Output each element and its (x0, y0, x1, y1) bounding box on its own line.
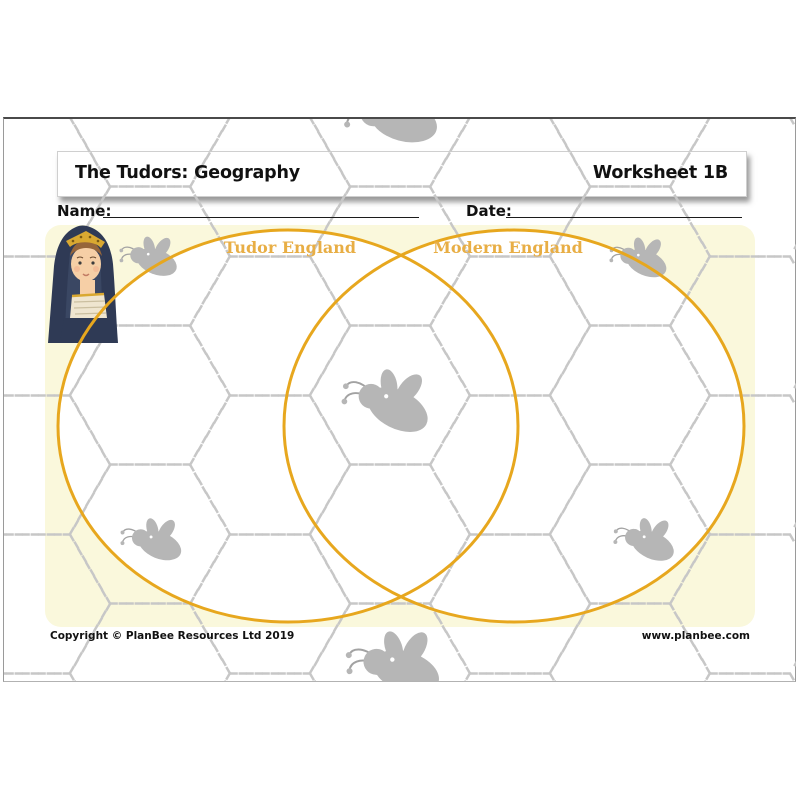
venn-right-circle (284, 230, 744, 622)
copyright-text: Copyright © PlanBee Resources Ltd 2019 (50, 630, 294, 642)
worksheet-page: { "header": { "title": "The Tudors: Geog… (0, 0, 800, 800)
bee-icon-upper-left (117, 233, 183, 287)
venn-left-circle (58, 230, 518, 622)
name-line (103, 217, 419, 218)
bee-icon-lower-left (118, 514, 187, 570)
graphics-layer (4, 119, 796, 681)
venn-left-label: Tudor England (224, 238, 356, 257)
date-line (506, 217, 742, 218)
venn-right-label: Modern England (433, 238, 583, 257)
tudor-queen-icon (48, 226, 118, 344)
bee-icon-bottom (342, 623, 450, 681)
bee-icon-lower-right (612, 515, 679, 569)
worksheet-number: Worksheet 1B (57, 151, 728, 195)
website-text: www.planbee.com (642, 630, 750, 642)
bee-icon-center (342, 368, 435, 441)
